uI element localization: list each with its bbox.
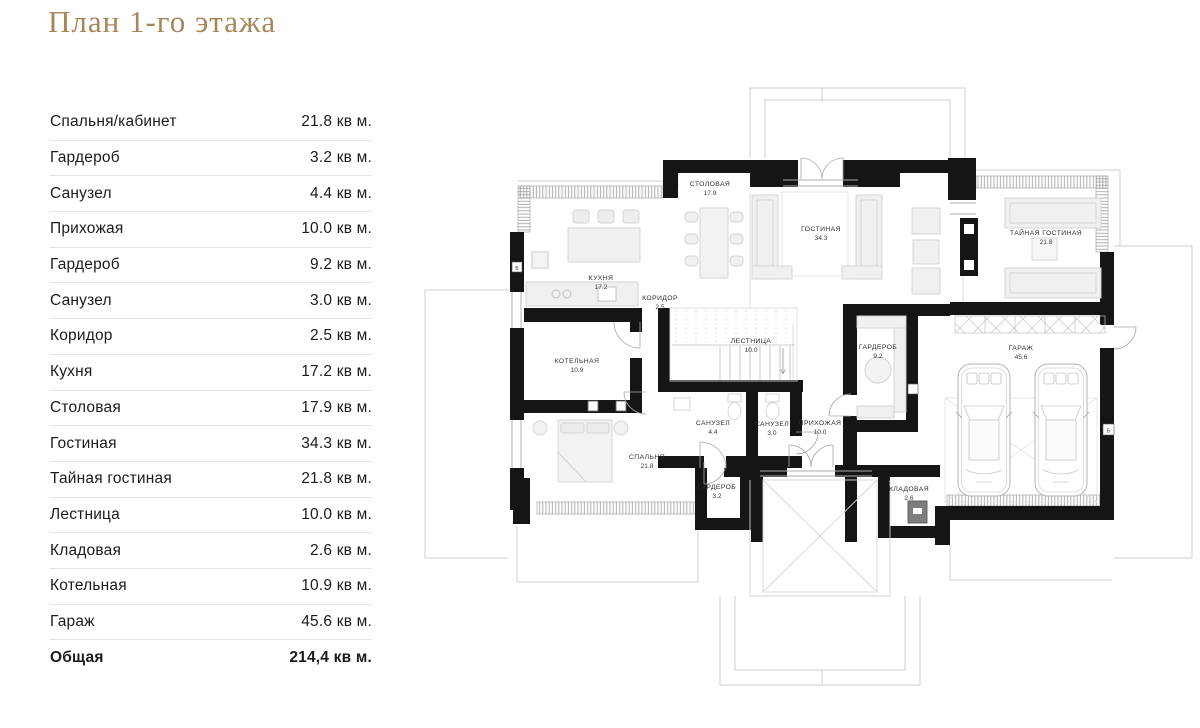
room-area: 3.2 кв м.	[310, 149, 372, 167]
area-table-row: Кухня17.2 кв м.	[50, 355, 372, 391]
room-area-value: 21.8	[641, 463, 654, 470]
total-label: Общая	[50, 649, 104, 667]
room-area: 2.5 кв м.	[310, 327, 372, 345]
bathroom-fixtures	[674, 394, 779, 420]
dining-table	[685, 208, 743, 278]
room-label: Санузел	[50, 292, 112, 310]
room-area-value: 34.3	[815, 235, 828, 242]
room-area: 21.8 кв м.	[301, 113, 372, 131]
floor-plan: Б Б	[420, 40, 1200, 700]
garage-car-1	[956, 364, 1012, 496]
room-name: КУХНЯ	[589, 275, 614, 282]
living-room-armchairs	[912, 208, 940, 294]
garage-car-2	[1033, 364, 1089, 496]
room-area-value: 17.9	[704, 190, 717, 197]
area-table-row: Лестница10.0 кв м.	[50, 498, 372, 534]
room-name: СПАЛЬНЯ	[629, 454, 665, 461]
wardrobe-closets	[857, 316, 906, 418]
room-area: 34.3 кв м.	[301, 435, 372, 453]
room-area-value: 10.0	[745, 347, 758, 354]
total-area: 214,4 кв м.	[289, 649, 372, 667]
room-name: ГОСТИНАЯ	[801, 226, 841, 233]
room-area: 9.2 кв м.	[310, 256, 372, 274]
room-name: ГАРДЕРОБ	[859, 344, 897, 351]
room-name: САНУЗЕЛ	[755, 421, 789, 428]
room-name: КОРИДОР	[642, 295, 678, 302]
room-name: САНУЗЕЛ	[696, 420, 730, 427]
room-name: КЛАДОВАЯ	[889, 486, 929, 493]
room-label: Коридор	[50, 327, 113, 345]
page: { "page_title": "План 1-го этажа", "tabl…	[0, 0, 1200, 728]
area-table-row: Кладовая2.6 кв м.	[50, 533, 372, 569]
area-table-row: Санузел4.4 кв м.	[50, 176, 372, 212]
area-table-total-row: Общая214,4 кв м.	[50, 640, 372, 675]
room-area: 45.6 кв м.	[301, 613, 372, 631]
area-table-row: Котельная10.9 кв м.	[50, 569, 372, 605]
room-name: КОТЕЛЬНАЯ	[555, 358, 600, 365]
room-area: 10.0 кв м.	[301, 220, 372, 238]
room-label: Лестница	[50, 506, 120, 524]
room-name: СТОЛОВАЯ	[690, 181, 730, 188]
room-area: 10.0 кв м.	[301, 506, 372, 524]
room-area-value: 17.2	[595, 284, 608, 291]
room-area: 3.0 кв м.	[310, 292, 372, 310]
room-label: Спальня/кабинет	[50, 113, 177, 131]
room-area-value: 10.0	[814, 429, 827, 436]
room-name: ТАЙНАЯ ГОСТИНАЯ	[1010, 228, 1082, 237]
area-table-row: Прихожая10.0 кв м.	[50, 212, 372, 248]
area-table-row: Тайная гостиная21.8 кв м.	[50, 462, 372, 498]
garage-closets	[955, 316, 1105, 333]
room-label: Гараж	[50, 613, 95, 631]
room-name: ГАРАЖ	[1009, 345, 1034, 352]
room-label: Кладовая	[50, 542, 121, 560]
room-area: 10.9 кв м.	[301, 577, 372, 595]
area-table-row: Гардероб9.2 кв м.	[50, 248, 372, 284]
room-area: 21.8 кв м.	[301, 470, 372, 488]
room-area: 17.9 кв м.	[301, 399, 372, 417]
secret-living-sofas	[1005, 198, 1101, 298]
area-table-row: Спальня/кабинет21.8 кв м.	[50, 105, 372, 141]
room-label: Гостиная	[50, 435, 117, 453]
room-area-value: 2.5	[655, 304, 664, 311]
room-area: 4.4 кв м.	[310, 185, 372, 203]
room-label: Санузел	[50, 185, 112, 203]
room-area-table: Спальня/кабинет21.8 кв м. Гардероб3.2 кв…	[50, 105, 372, 675]
room-label: Тайная гостиная	[50, 470, 172, 488]
room-area-value: 3.0	[767, 430, 776, 437]
room-area: 17.2 кв м.	[301, 363, 372, 381]
room-label: Кухня	[50, 363, 92, 381]
room-area-value: 4.4	[708, 429, 717, 436]
area-table-row: Коридор2.5 кв м.	[50, 319, 372, 355]
room-area-value: 21.8	[1040, 239, 1053, 246]
entrance-porch	[750, 480, 890, 596]
room-label: Котельная	[50, 577, 127, 595]
area-table-row: Гараж45.6 кв м.	[50, 605, 372, 641]
room-label: Столовая	[50, 399, 121, 417]
room-label: Гардероб	[50, 149, 120, 167]
room-name: ПРИХОЖАЯ	[799, 420, 842, 427]
room-area: 2.6 кв м.	[310, 542, 372, 560]
area-table-row: Гостиная34.3 кв м.	[50, 426, 372, 462]
room-area-value: 9.2	[873, 353, 882, 360]
area-table-row: Санузел3.0 кв м.	[50, 283, 372, 319]
room-label: Гардероб	[50, 256, 120, 274]
room-area-value: 2.6	[904, 495, 913, 502]
room-area-value: 45.6	[1015, 354, 1028, 361]
area-table-row: Столовая17.9 кв м.	[50, 391, 372, 427]
room-name: ЛЕСТНИЦА	[731, 338, 771, 345]
storage-unit	[908, 501, 927, 523]
kitchen-island	[568, 210, 640, 262]
room-label: Прихожая	[50, 220, 123, 238]
room-name: ГАРДЕРОБ	[698, 484, 736, 491]
bed	[533, 420, 628, 482]
page-title: План 1-го этажа	[48, 4, 276, 40]
room-area-value: 10.9	[571, 367, 584, 374]
room-area-value: 3.2	[712, 493, 721, 500]
area-table-row: Гардероб3.2 кв м.	[50, 141, 372, 177]
